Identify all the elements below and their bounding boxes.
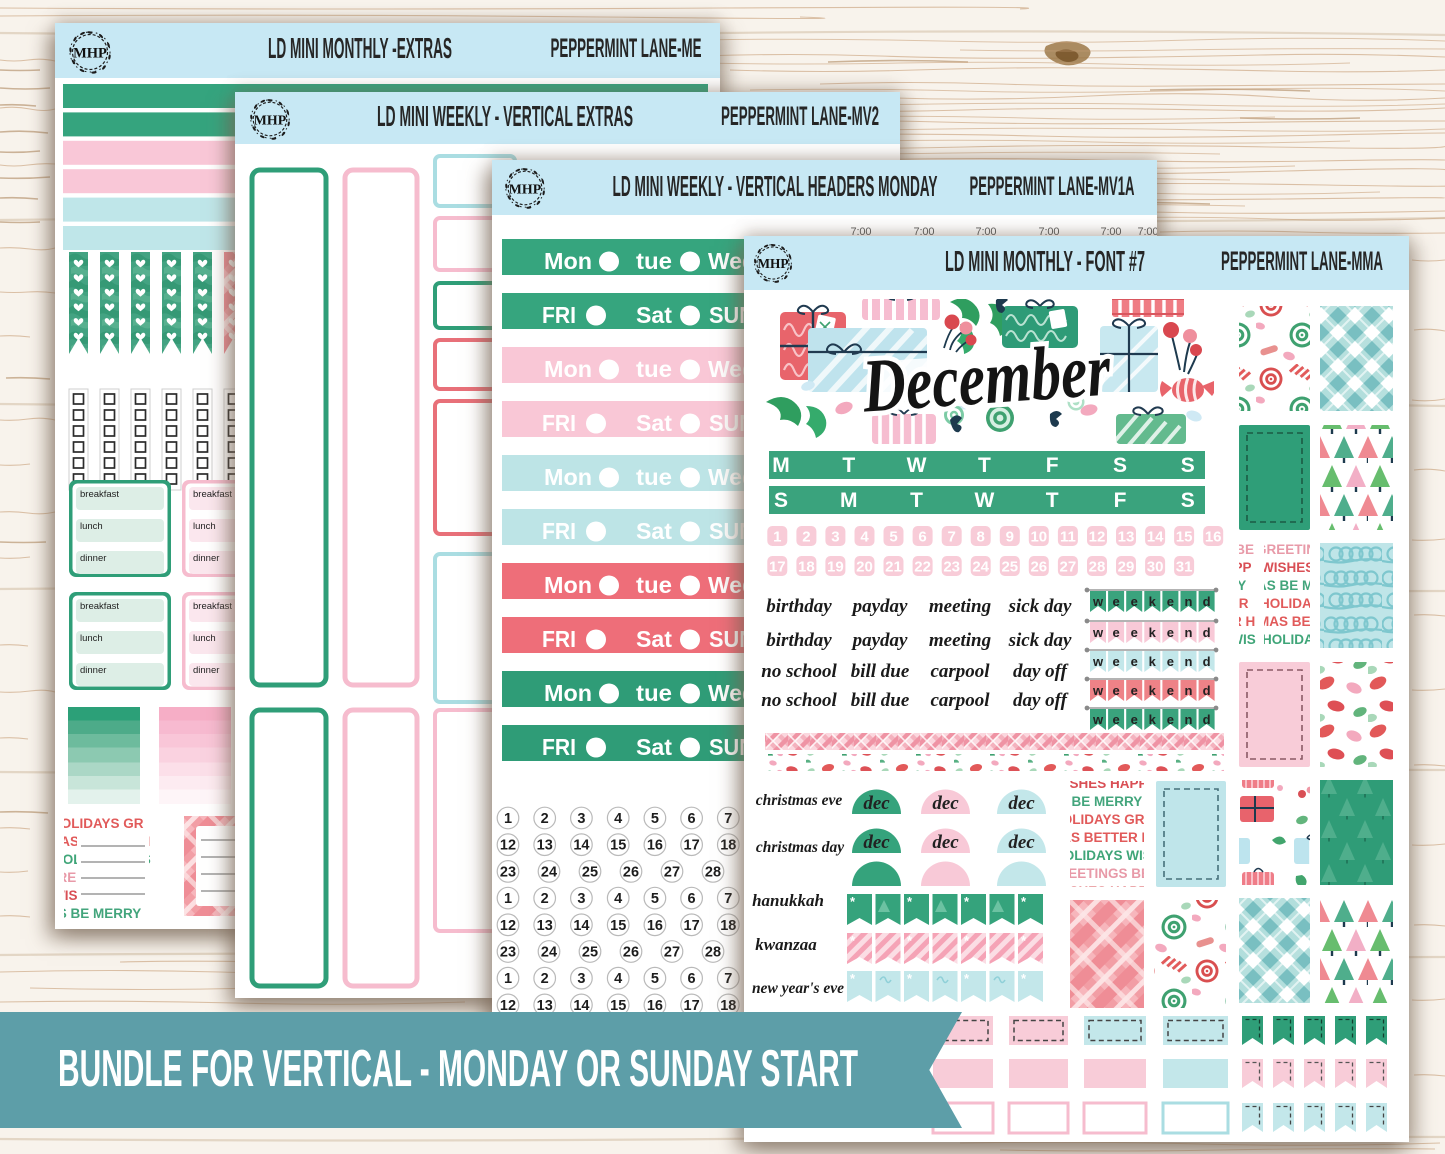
svg-text:1: 1 xyxy=(504,971,512,987)
svg-text:breakfast: breakfast xyxy=(80,601,119,612)
svg-text:christmas eve: christmas eve xyxy=(756,792,843,809)
svg-text:6: 6 xyxy=(688,811,696,827)
svg-text:S: S xyxy=(1113,454,1127,477)
svg-text:LD MINI MONTHLY -EXTRAS: LD MINI MONTHLY -EXTRAS xyxy=(268,33,452,65)
svg-text:10: 10 xyxy=(1030,529,1047,546)
svg-text:18: 18 xyxy=(798,559,815,576)
svg-text:23: 23 xyxy=(943,559,960,576)
svg-text:21: 21 xyxy=(885,559,902,576)
svg-text:16: 16 xyxy=(647,838,663,854)
svg-text:17: 17 xyxy=(769,559,786,576)
svg-text:16: 16 xyxy=(1205,529,1222,546)
svg-text:31: 31 xyxy=(1176,559,1193,576)
svg-text:16: 16 xyxy=(647,918,663,934)
svg-text:2: 2 xyxy=(541,971,549,987)
svg-text:PEPPERMINT LANE-ME: PEPPERMINT LANE-ME xyxy=(551,33,702,63)
svg-text:F: F xyxy=(1046,454,1059,477)
svg-text:14: 14 xyxy=(573,838,589,854)
svg-text:bill due: bill due xyxy=(851,661,910,682)
svg-text:7: 7 xyxy=(948,529,956,546)
svg-text:18: 18 xyxy=(720,838,736,854)
svg-text:LD MINI WEEKLY - VERTICAL HEAD: LD MINI WEEKLY - VERTICAL HEADERS MONDAY xyxy=(613,171,938,203)
svg-text:17: 17 xyxy=(684,918,700,934)
svg-text:28: 28 xyxy=(705,864,721,880)
svg-text:carpool: carpool xyxy=(930,661,990,682)
svg-text:breakfast: breakfast xyxy=(193,601,232,612)
svg-text:24: 24 xyxy=(972,559,989,576)
svg-text:30: 30 xyxy=(1147,559,1164,576)
svg-text:5: 5 xyxy=(651,811,659,827)
svg-text:27: 27 xyxy=(1060,559,1077,576)
svg-text:25: 25 xyxy=(582,864,598,880)
svg-text:28: 28 xyxy=(705,945,721,961)
svg-text:2: 2 xyxy=(802,529,810,546)
svg-text:no school: no school xyxy=(761,690,837,711)
svg-text:PEPPERMINT LANE-MV2: PEPPERMINT LANE-MV2 xyxy=(721,101,879,131)
svg-text:27: 27 xyxy=(664,864,680,880)
svg-text:17: 17 xyxy=(684,838,700,854)
svg-text:dinner: dinner xyxy=(80,665,106,676)
svg-text:M: M xyxy=(840,489,858,512)
svg-text:15: 15 xyxy=(1176,529,1193,546)
svg-text:dec: dec xyxy=(1008,832,1035,853)
svg-text:7: 7 xyxy=(724,811,732,827)
svg-text:12: 12 xyxy=(500,918,516,934)
svg-text:dec: dec xyxy=(932,832,959,853)
svg-text:23: 23 xyxy=(500,945,516,961)
svg-text:BUNDLE FOR VERTICAL - MONDAY O: BUNDLE FOR VERTICAL - MONDAY OR SUNDAY S… xyxy=(58,1040,858,1098)
svg-text:24: 24 xyxy=(541,864,557,880)
svg-text:22: 22 xyxy=(914,559,931,576)
svg-text:kwanzaa: kwanzaa xyxy=(755,935,817,954)
svg-text:December: December xyxy=(859,327,1114,428)
svg-text:lunch: lunch xyxy=(80,633,103,644)
svg-text:F: F xyxy=(1114,489,1127,512)
svg-text:8: 8 xyxy=(977,529,985,546)
svg-text:1: 1 xyxy=(773,529,781,546)
svg-text:7: 7 xyxy=(724,971,732,987)
svg-text:2: 2 xyxy=(541,891,549,907)
svg-text:7: 7 xyxy=(724,891,732,907)
svg-text:M: M xyxy=(772,454,790,477)
svg-text:lunch: lunch xyxy=(80,521,103,532)
svg-text:dec: dec xyxy=(863,832,890,853)
svg-text:new year's eve: new year's eve xyxy=(752,980,844,997)
svg-text:29: 29 xyxy=(1118,559,1135,576)
svg-text:5: 5 xyxy=(651,971,659,987)
svg-text:hanukkah: hanukkah xyxy=(752,891,824,910)
svg-text:3: 3 xyxy=(831,529,839,546)
svg-text:2: 2 xyxy=(541,811,549,827)
svg-text:3: 3 xyxy=(577,891,585,907)
svg-text:carpool: carpool xyxy=(930,690,990,711)
svg-text:dinner: dinner xyxy=(193,553,219,564)
svg-text:breakfast: breakfast xyxy=(193,489,232,500)
svg-text:6: 6 xyxy=(688,971,696,987)
svg-text:4: 4 xyxy=(860,529,869,546)
svg-text:4: 4 xyxy=(614,891,622,907)
svg-text:5: 5 xyxy=(651,891,659,907)
svg-text:T: T xyxy=(1046,489,1059,512)
svg-text:dinner: dinner xyxy=(193,665,219,676)
svg-text:T: T xyxy=(910,489,923,512)
svg-text:sick day: sick day xyxy=(1008,596,1072,617)
svg-text:dec: dec xyxy=(1008,793,1035,814)
svg-text:1: 1 xyxy=(504,811,512,827)
svg-text:19: 19 xyxy=(827,559,844,576)
svg-text:sick day: sick day xyxy=(1008,630,1072,651)
svg-text:lunch: lunch xyxy=(193,521,216,532)
svg-text:payday: payday xyxy=(851,596,908,617)
svg-text:christmas day: christmas day xyxy=(756,839,844,856)
svg-text:no school: no school xyxy=(761,661,837,682)
svg-text:13: 13 xyxy=(537,838,553,854)
svg-text:birthday: birthday xyxy=(766,596,832,617)
svg-text:28: 28 xyxy=(1089,559,1106,576)
svg-text:25: 25 xyxy=(582,945,598,961)
svg-text:T: T xyxy=(978,454,991,477)
svg-text:W: W xyxy=(907,454,927,477)
svg-text:PEPPERMINT LANE-MMA: PEPPERMINT LANE-MMA xyxy=(1221,246,1383,276)
svg-text:11: 11 xyxy=(1060,529,1076,546)
svg-text:24: 24 xyxy=(541,945,557,961)
svg-text:9: 9 xyxy=(1006,529,1014,546)
svg-text:4: 4 xyxy=(614,971,622,987)
svg-text:26: 26 xyxy=(1030,559,1047,576)
svg-text:4: 4 xyxy=(614,811,622,827)
svg-text:26: 26 xyxy=(623,945,639,961)
svg-text:day off: day off xyxy=(1013,690,1069,711)
svg-text:12: 12 xyxy=(500,838,516,854)
svg-text:3: 3 xyxy=(577,811,585,827)
svg-text:14: 14 xyxy=(573,918,589,934)
svg-text:15: 15 xyxy=(610,918,626,934)
svg-text:27: 27 xyxy=(664,945,680,961)
svg-text:S: S xyxy=(1181,454,1195,477)
svg-text:T: T xyxy=(842,454,855,477)
svg-text:LD MINI WEEKLY - VERTICAL EXTR: LD MINI WEEKLY - VERTICAL EXTRAS xyxy=(377,101,633,133)
svg-text:23: 23 xyxy=(500,864,516,880)
svg-text:S: S xyxy=(774,489,788,512)
svg-text:13: 13 xyxy=(1118,529,1135,546)
svg-text:13: 13 xyxy=(537,918,553,934)
svg-text:5: 5 xyxy=(889,529,897,546)
svg-text:lunch: lunch xyxy=(193,633,216,644)
svg-text:day off: day off xyxy=(1013,661,1069,682)
svg-text:20: 20 xyxy=(856,559,873,576)
svg-text:payday: payday xyxy=(851,630,908,651)
svg-text:dec: dec xyxy=(863,793,890,814)
svg-text:6: 6 xyxy=(688,891,696,907)
svg-text:breakfast: breakfast xyxy=(80,489,119,500)
svg-text:26: 26 xyxy=(623,864,639,880)
svg-text:PEPPERMINT LANE-MV1A: PEPPERMINT LANE-MV1A xyxy=(970,171,1135,201)
svg-text:S: S xyxy=(1181,489,1195,512)
svg-text:meeting: meeting xyxy=(929,630,991,651)
svg-text:bill due: bill due xyxy=(851,690,910,711)
svg-text:W: W xyxy=(974,489,994,512)
svg-text:15: 15 xyxy=(610,838,626,854)
svg-text:1: 1 xyxy=(504,891,512,907)
svg-text:dec: dec xyxy=(932,793,959,814)
svg-text:6: 6 xyxy=(918,529,926,546)
svg-text:14: 14 xyxy=(1147,529,1164,546)
svg-text:18: 18 xyxy=(720,918,736,934)
svg-text:25: 25 xyxy=(1001,559,1018,576)
svg-text:3: 3 xyxy=(577,971,585,987)
svg-text:birthday: birthday xyxy=(766,630,832,651)
svg-text:12: 12 xyxy=(1089,529,1106,546)
svg-text:meeting: meeting xyxy=(929,596,991,617)
svg-text:dinner: dinner xyxy=(80,553,106,564)
svg-text:LD MINI MONTHLY - FONT #7: LD MINI MONTHLY - FONT #7 xyxy=(945,246,1145,278)
